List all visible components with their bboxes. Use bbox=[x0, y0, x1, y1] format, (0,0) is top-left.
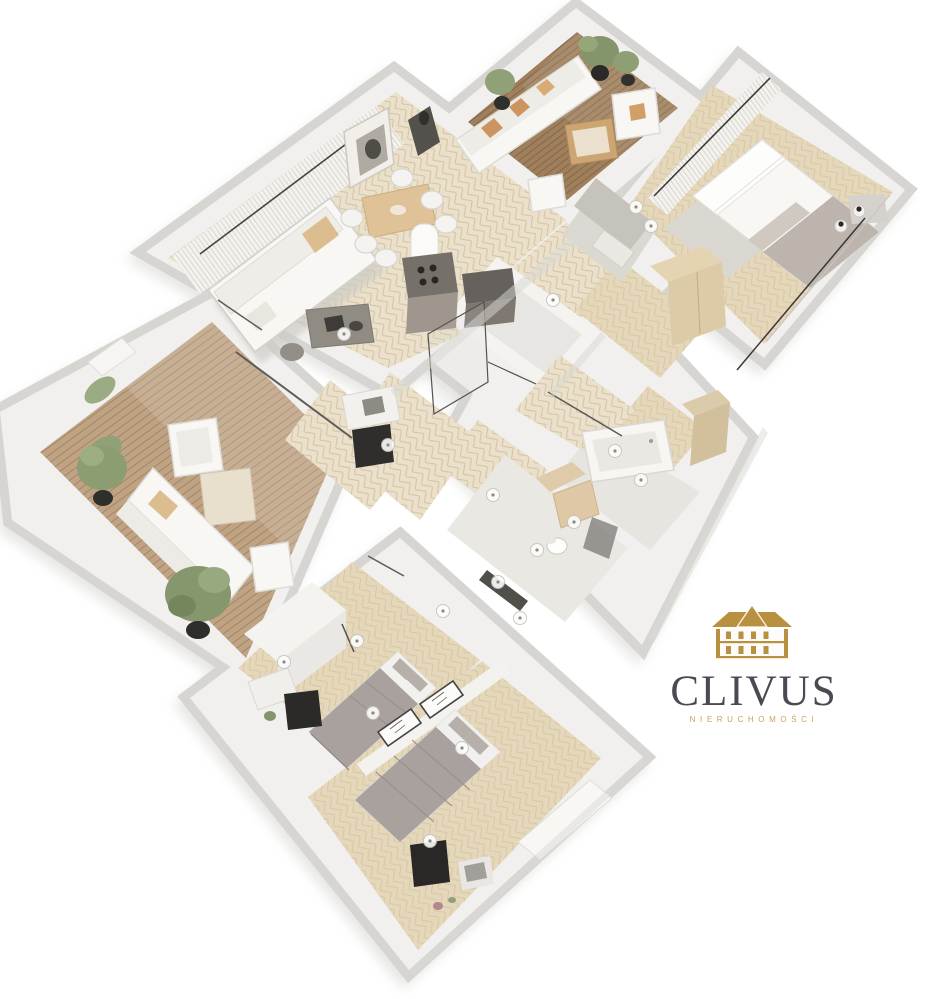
svg-text:NIERUCHOMOŚCI: NIERUCHOMOŚCI bbox=[690, 715, 819, 724]
svg-text:CLIVUS: CLIVUS bbox=[670, 668, 837, 715]
